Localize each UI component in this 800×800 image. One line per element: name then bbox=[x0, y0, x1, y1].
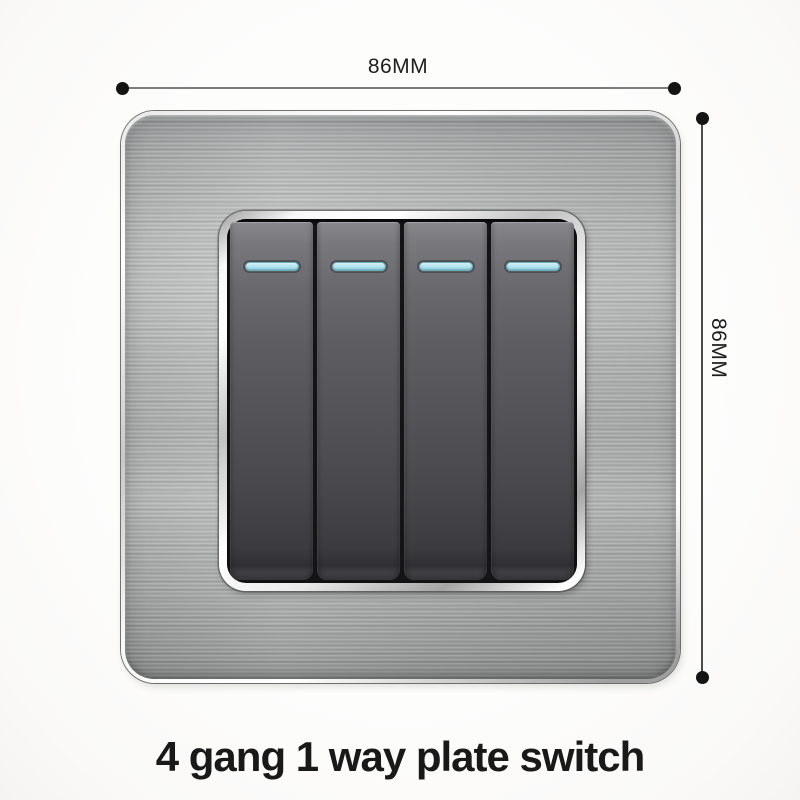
indicator-light bbox=[506, 262, 560, 271]
product-image: 86MM 86MM bbox=[0, 0, 800, 800]
width-dimension-dot-left bbox=[116, 82, 129, 95]
switch-plate bbox=[121, 111, 680, 683]
plate-face bbox=[125, 115, 676, 679]
height-dimension-dot-top bbox=[696, 112, 709, 125]
indicator-light bbox=[419, 262, 473, 271]
switch-bezel bbox=[219, 211, 585, 591]
width-dimension-dot-right bbox=[668, 82, 681, 95]
switch-rocker-1 bbox=[230, 222, 313, 580]
indicator-light bbox=[332, 262, 386, 271]
rocker-well bbox=[227, 219, 577, 583]
switch-rocker-2 bbox=[317, 222, 400, 580]
switch-rocker-3 bbox=[404, 222, 487, 580]
height-dimension-dot-bottom bbox=[696, 671, 709, 684]
product-caption: 4 gang 1 way plate switch bbox=[0, 733, 800, 781]
indicator-light bbox=[245, 262, 299, 271]
height-dimension-label: 86MM bbox=[706, 318, 730, 478]
switch-rocker-4 bbox=[491, 222, 574, 580]
width-dimension-label: 86MM bbox=[122, 55, 674, 79]
height-dimension-line bbox=[701, 118, 703, 677]
width-dimension-line bbox=[122, 87, 674, 89]
